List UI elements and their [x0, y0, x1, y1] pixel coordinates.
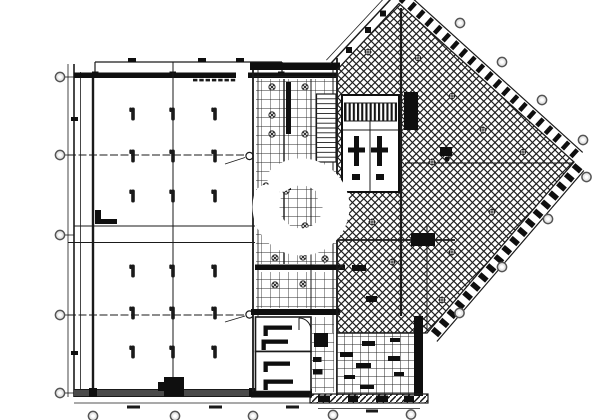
dock-block — [164, 377, 184, 397]
grid-bubbles-bottom-center — [409, 413, 413, 417]
dimension-tick — [286, 406, 299, 409]
bottom-room-rect — [362, 341, 375, 346]
hall-rect — [158, 382, 165, 391]
core-rect — [376, 174, 384, 180]
illegible-dimension-text — [212, 79, 216, 82]
rack-marks — [169, 265, 172, 270]
dimension-tick — [209, 406, 222, 409]
grid-bubbles-left-center — [58, 391, 62, 395]
grid-bubbles-bottom-center — [331, 413, 335, 417]
washrooms-rect — [264, 380, 268, 391]
rack-marks — [129, 108, 132, 113]
rack-marks — [169, 190, 172, 195]
rack-marks — [211, 265, 214, 270]
rack-marks — [129, 307, 132, 312]
washrooms-rect — [313, 357, 322, 362]
core-rect — [352, 174, 360, 180]
duct — [286, 82, 291, 134]
top-wall — [248, 73, 337, 79]
bottom-room-rect — [360, 385, 374, 389]
rack-marks — [169, 346, 172, 351]
ceiling-grid — [256, 272, 336, 308]
fixture-bench — [266, 362, 290, 366]
grid-bubbles-diamond-center — [585, 175, 589, 179]
rack-marks — [211, 108, 214, 113]
dimension-tick — [127, 406, 140, 409]
grid-bubbles-left-center — [58, 313, 62, 317]
dark-block — [411, 233, 435, 246]
locker-band — [345, 103, 397, 121]
heavy-wall — [414, 316, 423, 396]
band-nub — [365, 27, 371, 33]
illegible-dimension-text — [199, 79, 203, 82]
grid-bubbles-left-center — [58, 233, 62, 237]
grid-bubbles-left-center — [58, 75, 62, 79]
parapet-nub — [128, 58, 136, 62]
band-nub — [380, 11, 386, 17]
bottom-room-rect — [388, 356, 400, 361]
bottom-room-rect — [340, 352, 353, 357]
rack-marks — [129, 346, 132, 351]
parapet-nub — [198, 58, 206, 62]
core-rect — [352, 265, 366, 271]
core-rect — [371, 148, 388, 153]
bottom-room-rect — [348, 396, 358, 403]
washrooms-rect — [264, 362, 268, 373]
illegible-dimension-text — [225, 79, 229, 82]
rack-marks — [169, 307, 172, 312]
grid-bubbles-diamond-center — [458, 311, 462, 315]
grid-bubbles-left-center — [58, 153, 62, 157]
bottom-room-rect — [318, 396, 330, 403]
rack-marks — [211, 190, 214, 195]
wall-tick — [71, 351, 78, 355]
floor-plan-drawing — [0, 0, 600, 420]
illegible-dimension-text — [231, 79, 235, 82]
fixture-bench — [266, 326, 292, 330]
core-rect — [348, 148, 365, 153]
rack-marks — [211, 307, 214, 312]
white-marker-bulge — [317, 179, 347, 209]
bottom-room-rect — [356, 363, 371, 368]
cross-wall — [251, 309, 340, 315]
rack-marks — [129, 265, 132, 270]
rack-marks — [211, 346, 214, 351]
core-circle — [444, 156, 449, 161]
rack-marks — [211, 150, 214, 155]
bottom-room-rect — [390, 338, 400, 342]
grid-bubbles-bottom-center — [173, 414, 177, 418]
ceiling-grid — [312, 317, 334, 392]
grid-bubbles-diamond-center — [581, 138, 585, 142]
cross-wall — [255, 265, 345, 271]
band-nub — [346, 47, 352, 53]
core-rect — [366, 296, 377, 302]
bottom-room-rect — [394, 372, 404, 376]
rack-marks — [169, 150, 172, 155]
parapet-nub — [236, 58, 244, 62]
bottom-room-rect — [337, 333, 420, 394]
illegible-dimension-text — [218, 79, 222, 82]
grid-bubbles-diamond-center — [546, 217, 550, 221]
column-dot — [92, 72, 99, 79]
rack-marks — [129, 190, 132, 195]
fixture-bench — [266, 380, 293, 384]
dimension-tick — [366, 410, 378, 413]
core-rect — [440, 147, 452, 156]
rack-marks — [169, 108, 172, 113]
tag-circle — [246, 152, 253, 159]
equipment-block — [314, 333, 328, 347]
cad-viewer-canvas — [0, 0, 600, 420]
bottom-band — [251, 392, 312, 398]
grid-bubbles-bottom-center — [91, 414, 95, 418]
grid-bubbles-diamond-center — [500, 265, 504, 269]
washrooms-rect — [262, 340, 266, 351]
bottom-room-rect — [404, 396, 414, 403]
rack-marks — [129, 150, 132, 155]
fixture-bench — [264, 340, 288, 344]
column-dot — [89, 388, 97, 397]
illegible-dimension-text — [193, 79, 197, 82]
bottom-room-rect — [376, 396, 388, 403]
grid-bubbles-diamond-center — [500, 60, 504, 64]
top-band — [250, 63, 340, 71]
bottom-room-rect — [344, 375, 355, 379]
washrooms-rect — [313, 370, 323, 375]
wall-tick — [71, 117, 78, 121]
grid-bubbles-bottom-center — [251, 414, 255, 418]
illegible-dimension-text — [206, 79, 210, 82]
washrooms-rect — [264, 326, 268, 337]
grid-bubbles-diamond-center — [540, 98, 544, 102]
grid-bubbles-diamond-center — [458, 21, 462, 25]
shaft — [404, 92, 418, 130]
